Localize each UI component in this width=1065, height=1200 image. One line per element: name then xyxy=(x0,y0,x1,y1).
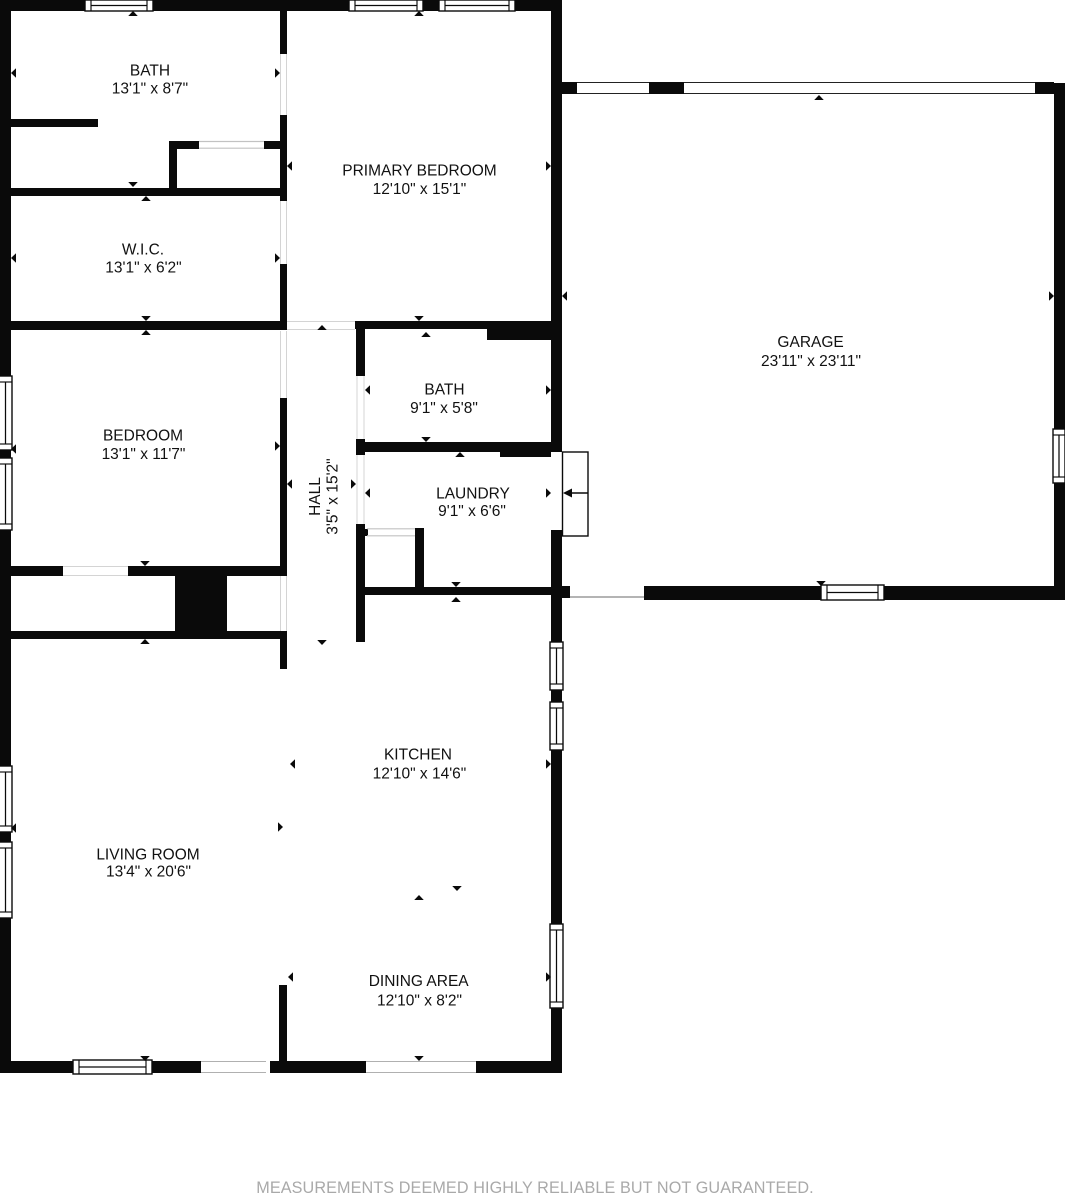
svg-text:9'1" x 6'6": 9'1" x 6'6" xyxy=(438,503,506,520)
svg-text:PRIMARY BEDROOM: PRIMARY BEDROOM xyxy=(342,163,496,180)
svg-text:MEASUREMENTS DEEMED HIGHLY REL: MEASUREMENTS DEEMED HIGHLY RELIABLE BUT … xyxy=(256,1179,814,1197)
svg-text:BATH: BATH xyxy=(424,382,464,399)
svg-text:12'10" x 14'6": 12'10" x 14'6" xyxy=(373,766,467,783)
svg-text:W.I.C.: W.I.C. xyxy=(122,242,164,259)
svg-text:BATH: BATH xyxy=(130,63,170,80)
svg-text:HALL: HALL xyxy=(307,477,324,516)
svg-text:LAUNDRY: LAUNDRY xyxy=(436,486,510,503)
svg-text:GARAGE: GARAGE xyxy=(777,334,843,351)
svg-text:13'1" x 11'7": 13'1" x 11'7" xyxy=(102,446,186,463)
svg-text:KITCHEN: KITCHEN xyxy=(384,747,452,764)
svg-text:23'11" x 23'11": 23'11" x 23'11" xyxy=(761,353,861,370)
svg-text:13'4" x 20'6": 13'4" x 20'6" xyxy=(106,864,191,881)
svg-text:12'10" x 8'2": 12'10" x 8'2" xyxy=(377,993,462,1010)
svg-text:12'10" x 15'1": 12'10" x 15'1" xyxy=(373,181,467,198)
svg-text:LIVING ROOM: LIVING ROOM xyxy=(96,847,199,864)
svg-text:3'5" x 15'2": 3'5" x 15'2" xyxy=(324,458,341,534)
svg-text:13'1" x 8'7": 13'1" x 8'7" xyxy=(112,81,188,98)
svg-text:9'1" x 5'8": 9'1" x 5'8" xyxy=(410,400,478,417)
svg-text:BEDROOM: BEDROOM xyxy=(103,428,183,445)
svg-text:13'1" x 6'2": 13'1" x 6'2" xyxy=(105,260,181,277)
svg-text:DINING AREA: DINING AREA xyxy=(369,973,470,990)
